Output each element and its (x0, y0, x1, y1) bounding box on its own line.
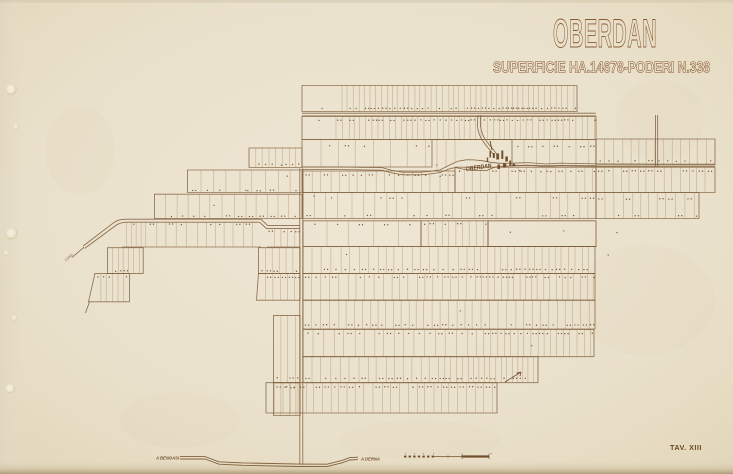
svg-text:OBERDAN: OBERDAN (553, 12, 657, 56)
svg-text:A BENGASI: A BENGASI (155, 456, 180, 461)
svg-text:TAV. XIII: TAV. XIII (670, 443, 702, 452)
svg-text:SUPERFICIE HA.14678-PODERI N.3: SUPERFICIE HA.14678-PODERI N.338 (493, 60, 710, 77)
svg-text:A DERNA: A DERNA (360, 457, 380, 462)
